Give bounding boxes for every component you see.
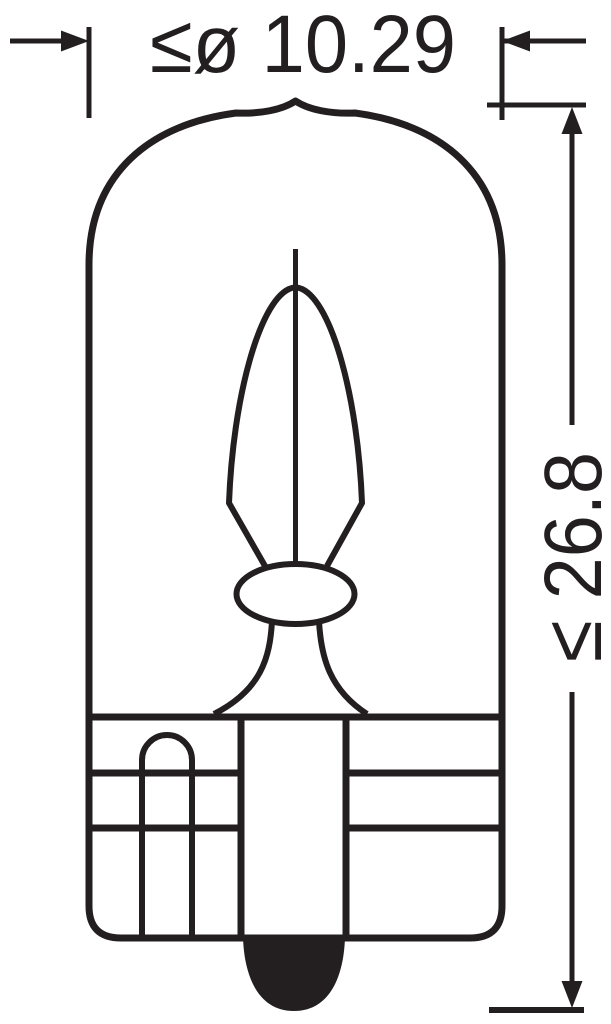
wedge-base: [89, 717, 502, 1011]
stem-flare-right: [319, 621, 367, 714]
length-arrowhead-down-icon: [562, 981, 583, 1008]
diameter-arrowhead-left-icon: [61, 31, 89, 52]
bulb-technical-drawing: ≤ø 10.29 ≤ 26.8: [0, 0, 611, 1024]
diameter-arrowhead-right-icon: [502, 31, 530, 52]
base-bottom-tip: [243, 937, 345, 1011]
length-arrowhead-up-icon: [562, 107, 583, 134]
filament-mount-assembly: [214, 249, 367, 714]
stem-flare-left: [214, 621, 272, 714]
length-dimension: ≤ 26.8: [487, 105, 611, 1010]
diameter-value-label: ≤ø 10.29: [150, 0, 456, 90]
length-value-label: ≤ 26.8: [528, 452, 611, 662]
contact-wire-loop: [142, 735, 192, 938]
technical-drawing-canvas: ≤ø 10.29 ≤ 26.8: [0, 0, 611, 1024]
glass-bead-ellipse: [237, 564, 355, 624]
